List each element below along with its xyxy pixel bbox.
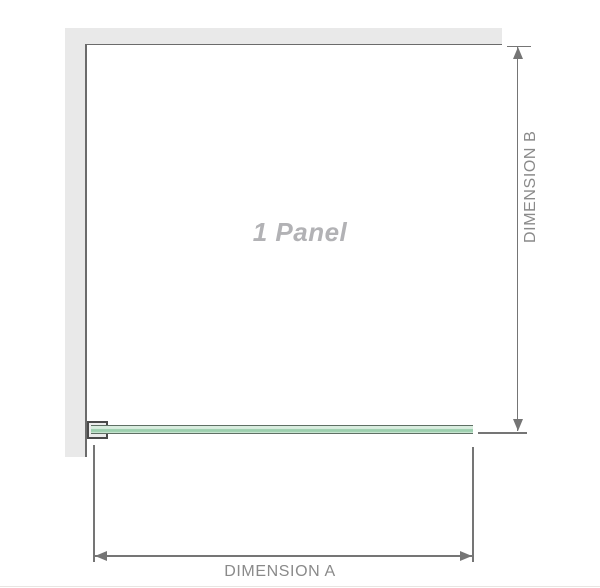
wall-top (65, 28, 502, 44)
panel-count-label: 1 Panel (150, 217, 450, 248)
arrow-down-icon (513, 419, 523, 431)
arrow-left-icon (95, 551, 107, 561)
arrow-up-icon (513, 47, 523, 59)
arrow-right-icon (460, 551, 472, 561)
panel-outline-top-edge (85, 44, 502, 46)
dimension-a-left-extension (93, 445, 95, 562)
wall-left (65, 28, 85, 457)
panel-dimension-diagram: 1 Panel DIMENSION B DIMENSION A (0, 0, 600, 588)
dimension-a-label: DIMENSION A (140, 563, 420, 581)
bottom-divider (0, 586, 600, 588)
panel-outline-left-edge (85, 44, 87, 457)
dimension-a-line (95, 555, 472, 557)
dimension-b-line (517, 47, 519, 431)
dimension-b-bottom-tick (478, 432, 527, 434)
glass-panel (91, 425, 473, 434)
dimension-a-right-extension (472, 447, 474, 562)
